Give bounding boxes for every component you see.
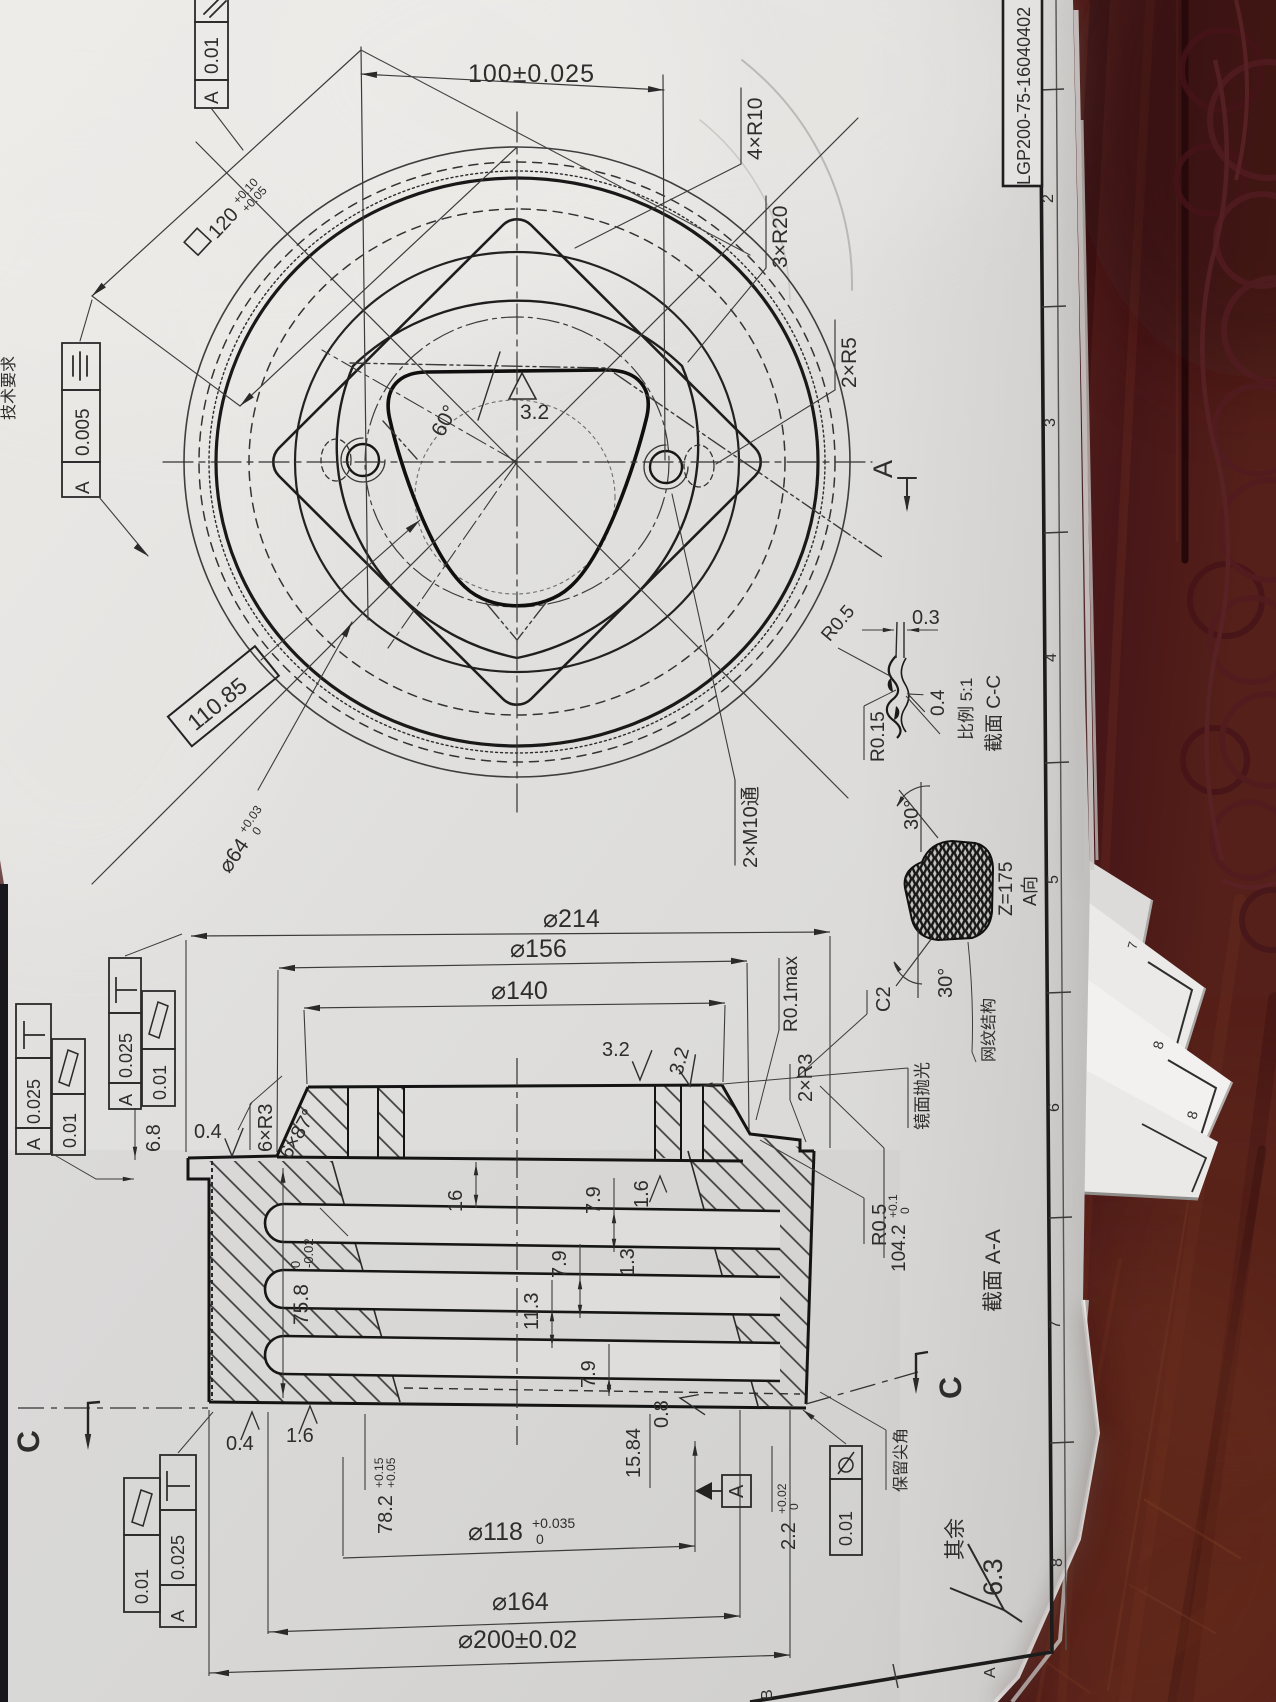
svg-text:0: 0 xyxy=(787,1503,801,1510)
svg-text:0.025: 0.025 xyxy=(24,1079,44,1124)
svg-text:2×R5: 2×R5 xyxy=(838,337,861,388)
svg-text:3: 3 xyxy=(1042,418,1059,427)
svg-text:0.8: 0.8 xyxy=(651,1400,673,1428)
svg-text:7.9: 7.9 xyxy=(578,1360,600,1388)
svg-text:A: A xyxy=(73,481,94,494)
svg-text:0.025: 0.025 xyxy=(116,1033,136,1078)
svg-text:⌀140: ⌀140 xyxy=(491,977,548,1005)
svg-text:C: C xyxy=(932,1375,969,1400)
svg-text:C: C xyxy=(10,1429,47,1454)
svg-text:5: 5 xyxy=(1045,875,1062,884)
svg-text:Z=175: Z=175 xyxy=(996,862,1017,916)
svg-text:+0.035: +0.035 xyxy=(532,1515,575,1531)
svg-text:A向: A向 xyxy=(1020,876,1040,906)
svg-text:16: 16 xyxy=(445,1190,467,1212)
svg-text:A: A xyxy=(202,91,223,104)
svg-text:B: B xyxy=(759,1689,776,1700)
svg-text:1.6: 1.6 xyxy=(286,1425,314,1447)
svg-text:0.01: 0.01 xyxy=(150,1065,170,1100)
svg-text:比例 5:1: 比例 5:1 xyxy=(957,678,976,740)
svg-text:0.01: 0.01 xyxy=(202,37,223,74)
svg-text:0.4: 0.4 xyxy=(226,1433,254,1455)
svg-text:0: 0 xyxy=(536,1531,544,1547)
svg-text:0: 0 xyxy=(898,1207,912,1214)
svg-text:15.84: 15.84 xyxy=(623,1428,645,1478)
svg-text:2: 2 xyxy=(1040,194,1057,203)
svg-text:30°: 30° xyxy=(901,800,923,830)
svg-text:网纹结构: 网纹结构 xyxy=(980,998,998,1062)
svg-text:7.9: 7.9 xyxy=(583,1186,605,1214)
svg-text:100±0.025: 100±0.025 xyxy=(468,60,595,88)
svg-text:镜面抛光: 镜面抛光 xyxy=(913,1062,932,1130)
svg-text:A: A xyxy=(868,460,898,478)
svg-text:6×R3: 6×R3 xyxy=(255,1104,277,1152)
svg-text:0.01: 0.01 xyxy=(836,1511,856,1546)
svg-text:11.3: 11.3 xyxy=(521,1293,543,1330)
svg-text:7: 7 xyxy=(1047,1320,1064,1329)
svg-text:6: 6 xyxy=(1046,1103,1063,1112)
svg-text:0.005: 0.005 xyxy=(73,408,94,456)
svg-text:其余: 其余 xyxy=(944,1518,967,1560)
svg-text:⌀200±0.02: ⌀200±0.02 xyxy=(458,1626,577,1654)
svg-text:R0.15: R0.15 xyxy=(868,711,889,762)
svg-text:0.4: 0.4 xyxy=(928,689,949,716)
svg-text:0.025: 0.025 xyxy=(168,1535,188,1580)
svg-text:78.2: 78.2 xyxy=(375,1495,397,1534)
svg-text:A: A xyxy=(24,1138,44,1150)
svg-text:A: A xyxy=(168,1610,188,1622)
svg-text:3×R20: 3×R20 xyxy=(769,206,792,268)
svg-text:⌀164: ⌀164 xyxy=(492,1588,549,1616)
svg-text:-0.02: -0.02 xyxy=(301,1238,316,1268)
svg-text:104.2: 104.2 xyxy=(889,1224,910,1272)
svg-text:技术要求: 技术要求 xyxy=(0,356,18,420)
svg-text:+0.05: +0.05 xyxy=(384,1457,398,1488)
svg-text:30°: 30° xyxy=(935,968,957,998)
svg-text:3.2: 3.2 xyxy=(520,401,549,424)
svg-text:4: 4 xyxy=(1043,653,1060,662)
svg-text:6.8: 6.8 xyxy=(143,1124,165,1152)
svg-text:A: A xyxy=(726,1484,748,1498)
svg-text:1.3: 1.3 xyxy=(617,1248,639,1276)
svg-text:1.6: 1.6 xyxy=(631,1180,653,1208)
svg-text:R0.1max: R0.1max xyxy=(781,955,802,1032)
svg-text:截面 C-C: 截面 C-C xyxy=(983,675,1005,752)
svg-text:LGP200-75-16040402: LGP200-75-16040402 xyxy=(1014,7,1034,185)
svg-text:0.01: 0.01 xyxy=(60,1113,80,1148)
svg-text:⌀156: ⌀156 xyxy=(510,935,567,963)
svg-text:保留尖角: 保留尖角 xyxy=(892,1428,910,1492)
svg-text:0.01: 0.01 xyxy=(132,1569,152,1604)
svg-text:2×M10通: 2×M10通 xyxy=(739,786,762,868)
svg-text:0.3: 0.3 xyxy=(912,607,940,629)
svg-text:截面 A-A: 截面 A-A xyxy=(982,1229,1005,1312)
svg-text:75.8: 75.8 xyxy=(290,1284,313,1325)
svg-text:⌀214: ⌀214 xyxy=(543,905,600,933)
svg-text:⌀118: ⌀118 xyxy=(468,1518,523,1546)
svg-text:7.9: 7.9 xyxy=(549,1250,571,1278)
svg-text:A: A xyxy=(116,1094,136,1106)
svg-text:3.2: 3.2 xyxy=(602,1039,630,1061)
svg-text:8: 8 xyxy=(1049,1558,1066,1567)
svg-text:2.2: 2.2 xyxy=(778,1522,800,1550)
svg-text:4×R10: 4×R10 xyxy=(744,98,767,160)
svg-text:C2: C2 xyxy=(873,986,895,1012)
svg-text:A: A xyxy=(982,1667,999,1678)
svg-text:0.4: 0.4 xyxy=(194,1121,222,1143)
